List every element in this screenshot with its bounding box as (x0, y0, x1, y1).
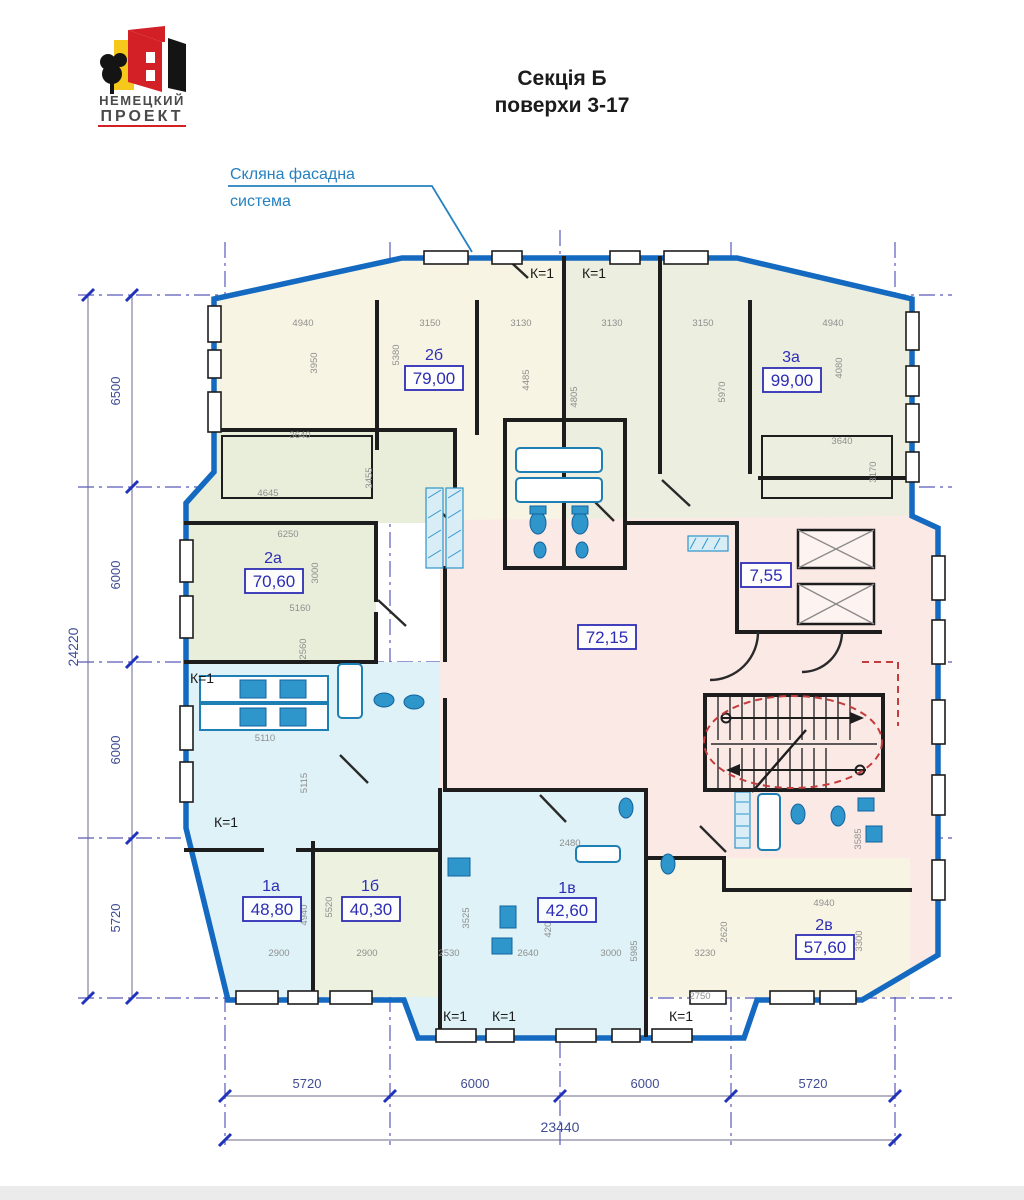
lobby-area-label: 7,55 (749, 566, 782, 585)
stove-icon (280, 708, 306, 726)
logo-text-line2: ПРОЕКТ (100, 108, 183, 125)
dim-int: 6250 (277, 529, 298, 540)
dim-int: 4805 (569, 386, 580, 407)
apartment-code-3a: 3а (782, 349, 800, 366)
title-floors: поверхи 3-17 (495, 94, 630, 117)
dim-int: 3950 (309, 352, 320, 373)
dim-int: 4485 (521, 369, 532, 390)
dim-int: 3525 (461, 907, 472, 928)
dim-int: 3640 (831, 436, 852, 447)
dim-bottom-seg-4: 5720 (799, 1076, 828, 1091)
dim-int: 3150 (419, 318, 440, 329)
k-label-bottom-2: К=1 (492, 1008, 516, 1024)
title-section: Секція Б (517, 67, 606, 90)
k-label-bottom-3: К=1 (669, 1008, 693, 1024)
dim-left-seg-3: 6000 (108, 736, 123, 765)
dim-int: 5115 (299, 773, 310, 793)
dim-int: 2530 (438, 948, 459, 959)
apartment-area-2a: 70,60 (253, 572, 296, 591)
fridge-icon (500, 906, 516, 928)
dim-int: 2480 (559, 838, 580, 849)
logo-window-1 (146, 52, 155, 63)
footer-strip (0, 1186, 1024, 1200)
dim-int: 3455 (364, 467, 375, 488)
logo-text-line1: НЕМЕЦКИЙ (99, 93, 185, 108)
sink-icon (240, 708, 266, 726)
apartment-area-1a: 48,80 (251, 900, 294, 919)
dim-int: 3000 (310, 562, 321, 583)
apartment-area-2v: 57,60 (804, 938, 847, 957)
apartment-area-3a: 99,00 (771, 371, 814, 390)
dim-int: 2750 (689, 991, 710, 1002)
k-label-top-left: К=1 (530, 265, 554, 281)
floor-plan-page: НЕМЕЦКИЙ ПРОЕКТ Секція Б поверхи 3-17 Ск… (0, 0, 1024, 1200)
apartment-code-1v: 1в (558, 880, 575, 897)
dim-left-seg-1: 6500 (108, 377, 123, 406)
apartment-code-1a: 1а (262, 878, 280, 895)
apartment-code-2b: 2б (425, 347, 443, 364)
apartment-code-2v: 2в (815, 917, 832, 934)
dim-bottom-seg-2: 6000 (461, 1076, 490, 1091)
dim-int: 4940 (813, 898, 834, 909)
dim-int: 3230 (694, 948, 715, 959)
dim-int: 2900 (268, 948, 289, 959)
annotation-line1: Скляна фасадна (230, 166, 355, 183)
toilet-icon (530, 512, 546, 534)
toilet-icon (619, 798, 633, 818)
k-label-bottom-1: К=1 (443, 1008, 467, 1024)
dim-int: 3170 (868, 461, 879, 482)
dim-int: 5970 (717, 381, 728, 402)
dim-int: 4645 (257, 488, 278, 499)
toilet-icon (374, 693, 394, 707)
dim-int: 3000 (600, 948, 621, 959)
bathtub-icon (758, 794, 780, 850)
washer-icon (866, 826, 882, 842)
dim-left-total: 24220 (65, 627, 81, 666)
dim-int: 3150 (692, 318, 713, 329)
toilet-icon (404, 695, 424, 709)
dim-bottom-seg-1: 5720 (293, 1076, 322, 1091)
stove-icon (280, 680, 306, 698)
dim-int: 5160 (289, 603, 310, 614)
dim-int: 3640 (289, 430, 310, 441)
dim-int: 3300 (854, 930, 865, 951)
annotation-line2: система (230, 193, 291, 210)
dim-left-seg-4: 5720 (108, 904, 123, 933)
k-label-top-right: К=1 (582, 265, 606, 281)
apartment-area-1b: 40,30 (350, 900, 393, 919)
sink-icon (858, 798, 874, 811)
toilet-icon (831, 806, 845, 826)
dim-int: 5380 (391, 344, 402, 365)
apartment-area-2b: 79,00 (413, 369, 456, 388)
dim-int: 4940 (292, 318, 313, 329)
bathtub-icon (516, 478, 602, 502)
apartment-area-1v: 42,60 (546, 901, 589, 920)
bathtub-icon (338, 664, 362, 718)
logo-red-underline (98, 125, 186, 127)
dim-bottom-seg-3: 6000 (631, 1076, 660, 1091)
stove-icon (492, 938, 512, 954)
dim-int: 2560 (298, 638, 309, 659)
corridor-area-label: 72,15 (586, 628, 629, 647)
dim-int: 3130 (510, 318, 531, 329)
logo-black-block (168, 38, 186, 92)
dim-int: 5985 (629, 940, 640, 961)
dim-int: 3130 (601, 318, 622, 329)
drawing-title: Секція Б поверхи 3-17 (495, 67, 630, 117)
bathtub-icon (516, 448, 602, 472)
dim-int: 2640 (517, 948, 538, 959)
floor-plan-drawing: НЕМЕЦКИЙ ПРОЕКТ Секція Б поверхи 3-17 Ск… (0, 0, 1024, 1200)
toilet-icon (791, 804, 805, 824)
dim-int: 2900 (356, 948, 377, 959)
apartment-code-1b: 1б (361, 878, 379, 895)
sink-icon (448, 858, 470, 876)
facade-annotation: Скляна фасадна система (228, 166, 472, 252)
dim-bottom-total: 23440 (541, 1119, 580, 1135)
dim-int: 3585 (853, 828, 864, 849)
k-label-left-lower: К=1 (214, 814, 238, 830)
dim-int: 4940 (822, 318, 843, 329)
dim-left-seg-2: 6000 (108, 561, 123, 590)
k-label-left-upper: К=1 (190, 670, 214, 686)
dim-int: 2620 (719, 921, 730, 942)
logo-window-2 (146, 70, 155, 81)
company-logo: НЕМЕЦКИЙ ПРОЕКТ (98, 26, 186, 127)
sink-icon (240, 680, 266, 698)
dim-int: 5110 (255, 733, 275, 744)
toilet-icon (661, 854, 675, 874)
dim-int: 4080 (834, 357, 845, 378)
toilet-icon (572, 512, 588, 534)
dim-int: 5520 (324, 896, 335, 917)
bathtub-icon (576, 846, 620, 862)
apartment-code-2a: 2а (264, 550, 282, 567)
